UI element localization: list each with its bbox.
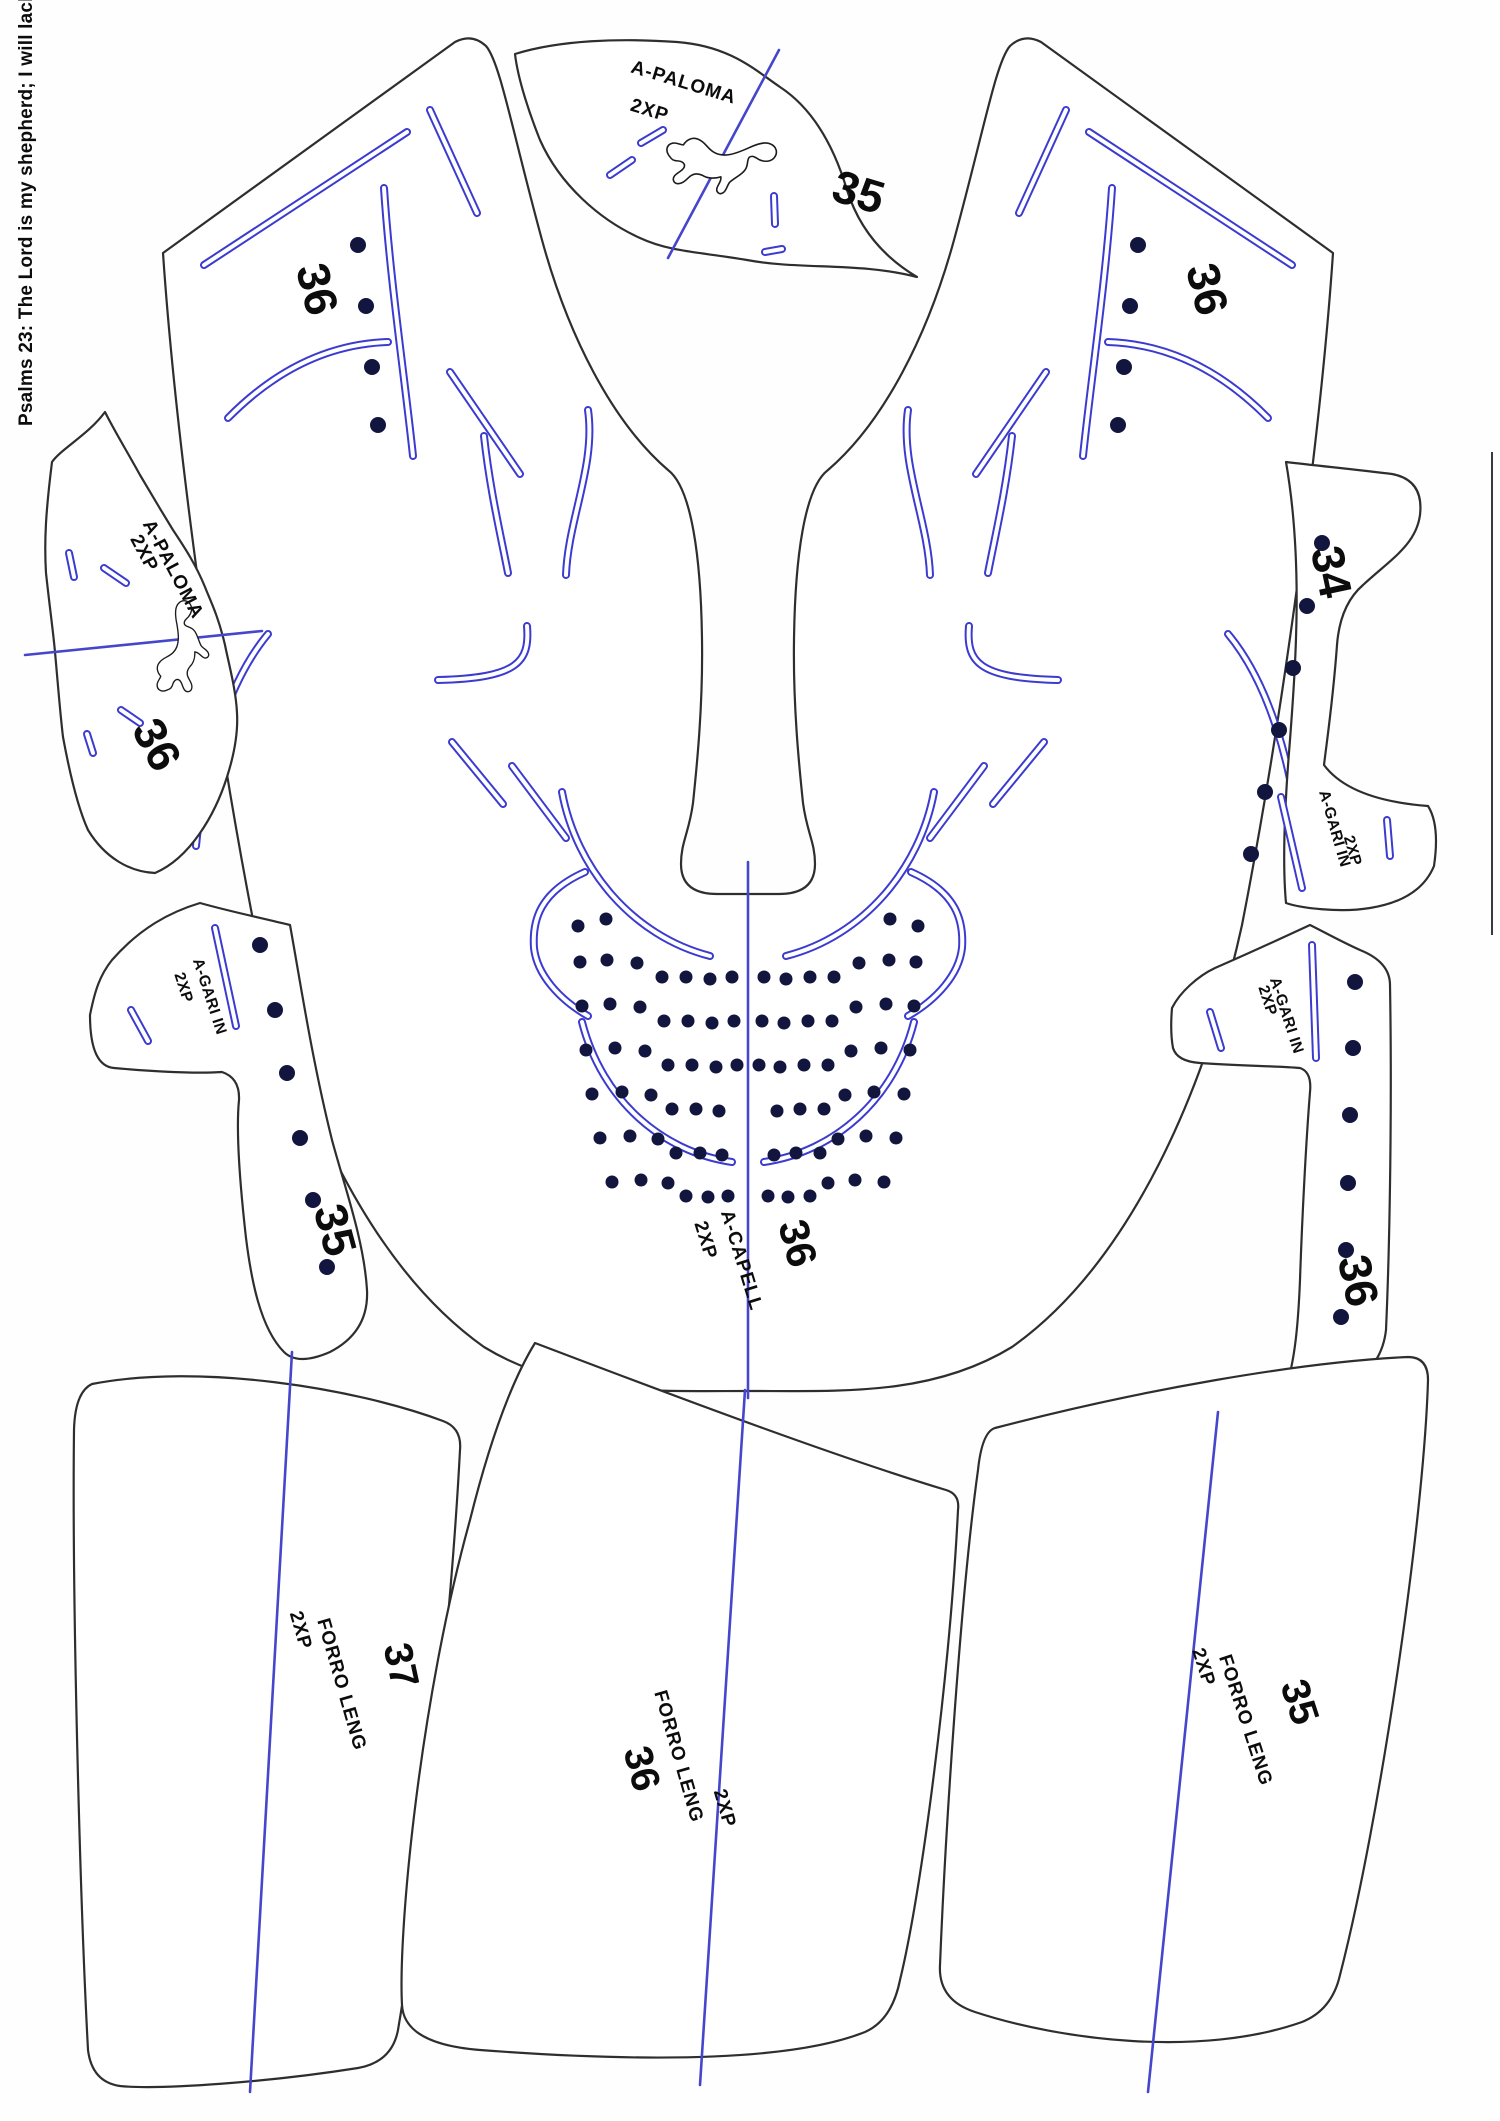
forro-37-size: 37 [375,1639,427,1692]
pattern-canvas: Psalms 23: The Lord is my shepherd; I wi… [0,0,1500,2121]
gari-36-size: 36 [1328,1250,1390,1311]
piece-forro-36-outline [402,1343,959,2057]
margin-verse: Psalms 23: The Lord is my shepherd; I wi… [16,0,37,426]
piece-forro-35-outline [940,1357,1428,2042]
piece-a-gari-34-outline [1284,462,1436,910]
pattern-sheet: Psalms 23: The Lord is my shepherd; I wi… [0,0,1500,2121]
